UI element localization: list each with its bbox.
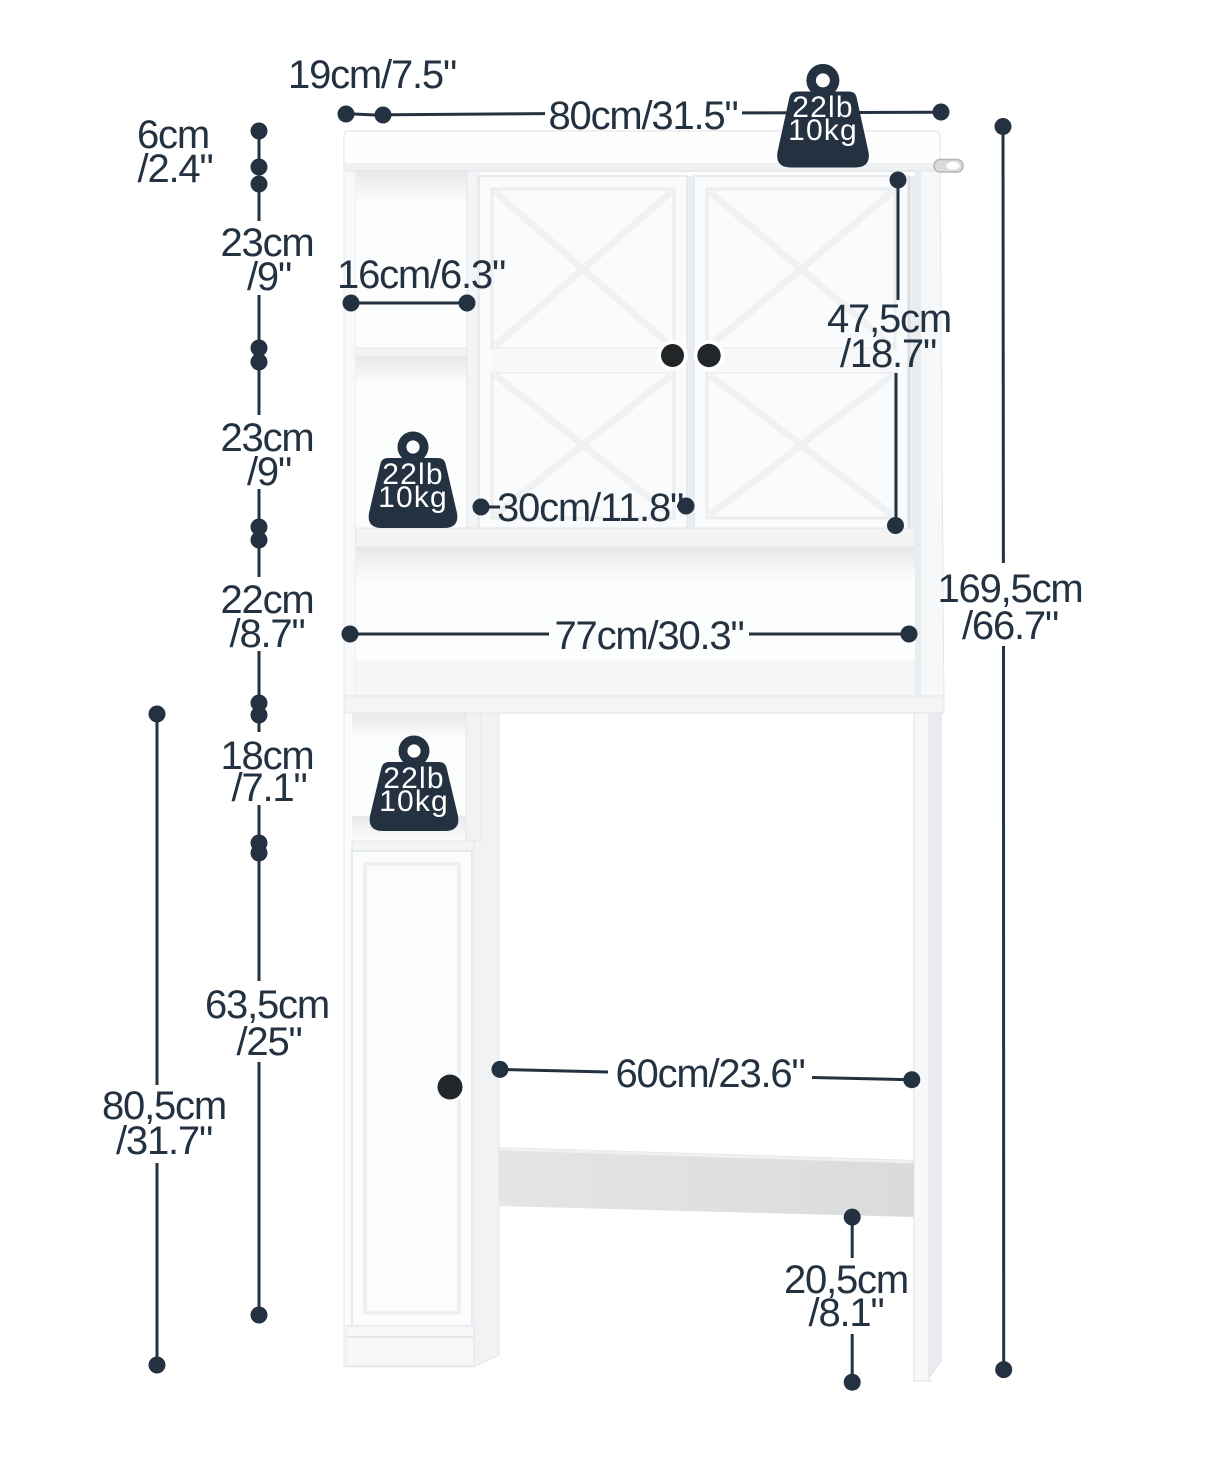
svg-text:19cm/7.5": 19cm/7.5"	[288, 53, 456, 97]
svg-text:80cm/31.5": 80cm/31.5"	[549, 94, 738, 138]
svg-text:10kg: 10kg	[378, 481, 448, 514]
svg-text:77cm/30.3": 77cm/30.3"	[555, 614, 744, 658]
svg-text:/18.7": /18.7"	[840, 332, 936, 376]
svg-text:10kg: 10kg	[379, 785, 449, 818]
svg-text:/25": /25"	[236, 1020, 301, 1064]
svg-text:/31.7": /31.7"	[116, 1119, 212, 1163]
svg-text:60cm/23.6": 60cm/23.6"	[616, 1052, 805, 1096]
svg-text:/8.7": /8.7"	[230, 612, 305, 656]
svg-text:/66.7": /66.7"	[962, 604, 1058, 648]
svg-text:/9": /9"	[247, 255, 291, 299]
svg-text:16cm/6.3": 16cm/6.3"	[337, 253, 505, 297]
svg-text:/9": /9"	[247, 450, 291, 494]
svg-text:30cm/11.8": 30cm/11.8"	[497, 486, 683, 530]
svg-text:10kg: 10kg	[788, 114, 858, 147]
svg-text:/8.1": /8.1"	[809, 1291, 884, 1335]
svg-text:/2.4": /2.4"	[138, 147, 213, 191]
svg-text:/7.1": /7.1"	[232, 766, 307, 810]
